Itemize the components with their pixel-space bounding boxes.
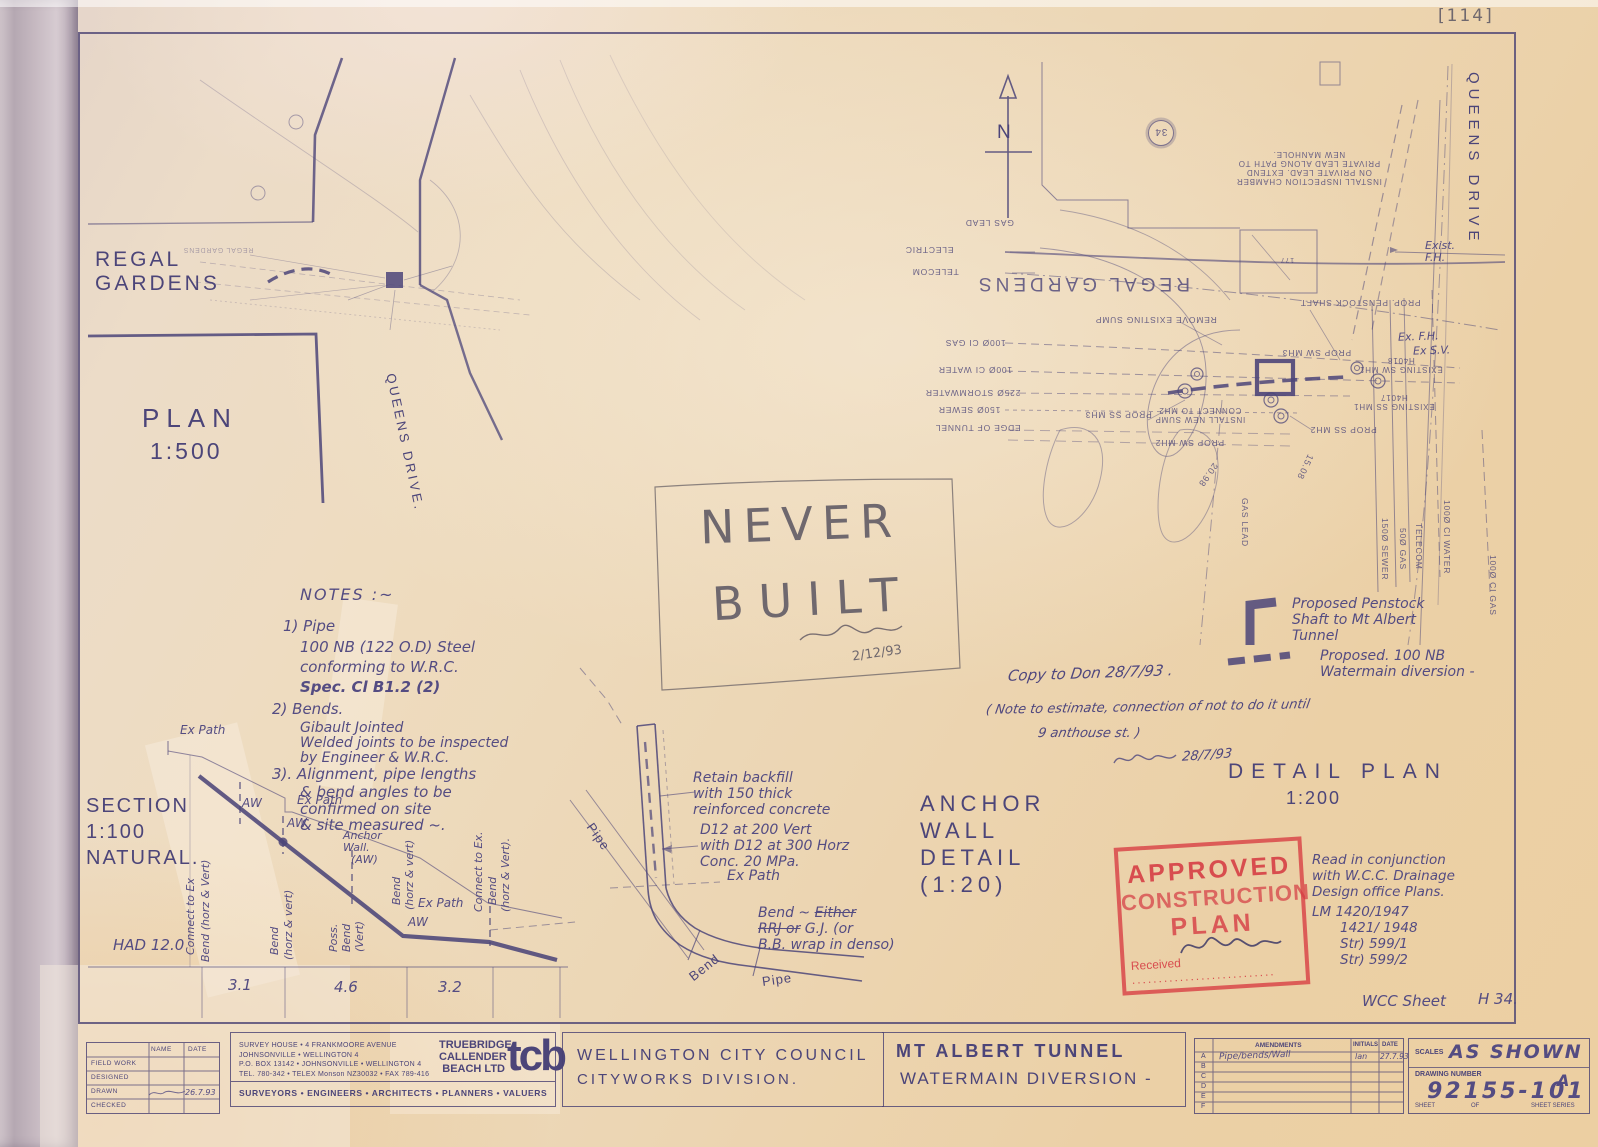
prop-sw-mh3-label: PROP SW MH3 — [1282, 348, 1351, 358]
plan500-scale: 1:500 — [150, 438, 223, 465]
v-water100-label: 100Ø CI WATER — [1442, 500, 1452, 574]
existing-ss-mh1-label: EXISTING SS MH1 H4017 — [1345, 393, 1443, 411]
sec-rot-connect5: Connect to Ex. — [472, 832, 485, 912]
client-line2: CITYWORKS DIVISION. — [577, 1071, 799, 1088]
legend-penstock-text: Proposed Penstock Shaft to Mt Albert Tun… — [1292, 596, 1425, 644]
drawn-name-signature — [147, 1087, 187, 1099]
drawing-number-label: DRAWING NUMBER — [1415, 1071, 1482, 1078]
row-designed: DESIGNED — [91, 1074, 129, 1081]
regal-gardens-label: REGAL GARDENS — [975, 272, 1190, 294]
note-line: 1) Pipe — [283, 617, 335, 635]
scan-top-edge — [0, 0, 1598, 7]
wcc-sheet-value: H 34. — [1478, 990, 1518, 1008]
sec-rot-bend2: Bend — [268, 927, 281, 955]
edge-tunnel-label: EDGE OF TUNNEL — [935, 423, 1021, 433]
amend-date-header: DATE — [1382, 1042, 1398, 1048]
amend-rowA-initials: lan — [1355, 1052, 1367, 1061]
amend-row-letter: C — [1201, 1073, 1206, 1080]
sec-rot-bend4: Bend — [390, 877, 403, 905]
legend-watermain-text: Proposed. 100 NB Watermain diversion - — [1320, 648, 1475, 680]
note-line: Spec. Cl B1.2 (2) — [300, 678, 440, 696]
sewer150-label: 150Ø SEWER — [938, 405, 1000, 415]
tcb-disciplines: SURVEYORS • ENGINEERS • ARCHITECTS • PLA… — [239, 1088, 547, 1098]
v-sewer150-label: 150Ø SEWER — [1380, 518, 1390, 580]
estimate-note-line2: 9 anthouse st. ) — [1037, 726, 1142, 741]
sec-rot-bend1: Bend (horz & Vert) — [199, 860, 212, 962]
received-signature — [1175, 925, 1285, 965]
amendments-table: AMENDMENTS INITIALS DATE A B C D E F Pip… — [1194, 1038, 1404, 1114]
detail-plan-title: DETAIL PLAN — [1228, 760, 1448, 784]
gas100-label: 100Ø CI GAS — [945, 338, 1006, 348]
telecom-label: TELECOM — [912, 267, 959, 277]
existing-sw-mh1-label: EXISTING SW MH1 H4018 — [1352, 356, 1450, 374]
ex-sv-note: Ex S.V. — [1413, 343, 1451, 357]
initials-header: INITIALS — [1353, 1042, 1378, 1048]
sec-rot-poss-bend: Bend — [340, 924, 353, 952]
scales-label: SCALES — [1415, 1049, 1443, 1056]
sec-ex-path-1: Ex Path — [180, 723, 225, 737]
plan500-regal-gardens-label: REGAL GARDENS — [95, 248, 220, 296]
fieldwork-table: NAME DATE FIELD WORK DESIGNED DRAWN CHEC… — [86, 1042, 220, 1114]
tcb-divider — [231, 1081, 555, 1082]
drawn-date: 26.7.93 — [185, 1088, 216, 1097]
row-drawn: DRAWN — [91, 1088, 118, 1095]
tcb-name: TRUEBRIDGE CALLENDER BEACH LTD — [439, 1039, 505, 1075]
notes-heading: NOTES :~ — [300, 585, 394, 604]
reinforcement-note: D12 at 200 Vert with D12 at 300 Horz Con… — [700, 822, 849, 870]
chainage-2: 4.6 — [334, 978, 358, 996]
water100-label: 100Ø CI WATER — [938, 365, 1012, 375]
note-line: 100 NB (122 O.D) Steel — [300, 638, 475, 656]
row-checked: CHECKED — [91, 1102, 126, 1109]
circled-ref-34: 34 — [1148, 120, 1174, 146]
scales-value: AS SHOWN — [1449, 1041, 1583, 1063]
pencil-reference-number: [114] — [1438, 6, 1494, 26]
col-date-header: DATE — [188, 1046, 207, 1053]
drawing-number-block: SCALES AS SHOWN DRAWING NUMBER 92155-101… — [1408, 1038, 1590, 1114]
client-line1: WELLINGTON CITY COUNCIL — [577, 1047, 869, 1065]
sheet-label: SHEET — [1415, 1103, 1435, 1109]
tcb-address: SURVEY HOUSE • 4 FRANKMOORE AVENUE JOHNS… — [239, 1041, 429, 1079]
project-block: MT ALBERT TUNNEL WATERMAIN DIVERSION - — [882, 1032, 1186, 1107]
never-built-word2: BUILT — [711, 567, 915, 631]
sec-ex-path-3: Ex Path — [418, 896, 463, 910]
sec-rot-poss-vert: (Vert) — [353, 921, 366, 952]
chainage-3: 3.2 — [438, 978, 462, 996]
detail-plan-scale: 1:200 — [1286, 788, 1341, 809]
remove-sump-label: REMOVE EXISTING SUMP — [1095, 315, 1217, 325]
sec-rot-connect5c: (horz & Vert). — [499, 838, 512, 912]
tcb-logo: tcb — [507, 1031, 564, 1081]
sec-anchor-wall-note: Anchor Wall. (AW) — [343, 830, 382, 866]
plan500-regal-mirror-label: REGAL GARDENS — [183, 246, 253, 253]
note-signature — [1110, 745, 1180, 771]
revision-letter: A — [1557, 1071, 1569, 1090]
amend-row-letter: A — [1201, 1053, 1206, 1060]
sec-rot-connect1: Connect to Ex — [184, 878, 197, 955]
sec-rot-bend4b: (horz & vert) — [403, 840, 416, 910]
conjunction-note: Read in conjunction with W.C.C. Drainage… — [1312, 852, 1455, 968]
prop-penstock-label: PROP. PENSTOCK SHAFT — [1300, 298, 1421, 308]
building-number: 177 — [1280, 256, 1294, 263]
sec-aw-2: AW — [287, 816, 307, 830]
sheet-series-label: SHEET SERIES — [1531, 1103, 1575, 1109]
of-label: OF — [1471, 1103, 1479, 1109]
amend-row-letter: E — [1201, 1093, 1206, 1100]
sec-ex-path-2: Ex Path — [297, 793, 342, 807]
v-gas-lead-label: GAS LEAD — [1240, 498, 1250, 547]
scanned-drawing-sheet: [114] REGAL GARDENS REGA — [0, 0, 1598, 1147]
never-built-word1: NEVER — [699, 494, 902, 555]
install-sump-note: INSTALL NEW SUMP CONNECT TO MH2 — [1150, 406, 1250, 424]
sec-aw-1: AW — [242, 796, 262, 810]
v-gas50-label: 50Ø GAS — [1398, 528, 1408, 570]
gas-lead-label: GAS LEAD — [965, 218, 1014, 228]
anchor-wall-title: ANCHOR WALL DETAIL (1:20) — [920, 790, 1045, 898]
backfill-note: Retain backfill with 150 thick reinforce… — [693, 770, 830, 818]
ex-fh-note: Ex. F.H. — [1398, 329, 1439, 343]
amend-row-letter: B — [1201, 1063, 1206, 1070]
prop-ss-mh2-label: PROP SS MH2 — [1310, 425, 1377, 435]
sec-rot-bend2b: (horz & vert) — [282, 890, 295, 960]
bend-joint-note: Bend ~ Either RRJ or G.J. (or B.B. wrap … — [758, 905, 895, 953]
client-block: WELLINGTON CITY COUNCIL CITYWORKS DIVISI… — [562, 1032, 884, 1107]
prop-ss-mh3-label: PROP SS MH3 — [1085, 410, 1152, 420]
project-line1: MT ALBERT TUNNEL — [896, 1041, 1125, 1062]
v-gas100-label: 100Ø CI GAS — [1488, 555, 1498, 616]
storm225-label: 225Ø STORMWATER — [925, 388, 1020, 398]
queens-drive-right-label: QUEENS DRIVE — [1465, 72, 1482, 245]
section-datum: HAD 12.0 — [113, 936, 184, 954]
tcb-block: SURVEY HOUSE • 4 FRANKMOORE AVENUE JOHNS… — [230, 1032, 556, 1107]
amendments-header: AMENDMENTS — [1255, 1042, 1302, 1049]
col-name-header: NAME — [151, 1046, 172, 1053]
amend-row-letter: F — [1201, 1103, 1205, 1110]
plan500-title: PLAN — [142, 403, 238, 434]
amend-rowA-date: 27.7.93 — [1380, 1052, 1409, 1061]
install-chamber-note: INSTALL INSPECTION CHAMBER ON PRIVATE LE… — [1230, 150, 1388, 186]
electric-label: ELECTRIC — [905, 245, 953, 255]
sec-rot-poss: Poss. — [327, 924, 340, 952]
row-field-work: FIELD WORK — [91, 1060, 136, 1067]
scales-divider — [1409, 1067, 1589, 1068]
section-title: SECTION 1:100 NATURAL. — [86, 793, 199, 871]
approved-stamp: APPROVED CONSTRUCTION PLAN Received ....… — [1114, 836, 1311, 995]
prop-sw-mh2-label: PROP SW MH2 — [1155, 438, 1224, 448]
chainage-1: 3.1 — [228, 976, 252, 994]
amend-row-letter: D — [1201, 1083, 1206, 1090]
wcc-sheet-label: WCC Sheet — [1362, 992, 1446, 1010]
sec-rot-connect5b: Bend — [486, 877, 499, 905]
sec-aw-3: AW — [408, 915, 428, 929]
exist-fh-note: Exist. F.H. — [1425, 240, 1455, 264]
project-line2: WATERMAIN DIVERSION - — [900, 1069, 1153, 1089]
note-line: conforming to W.R.C. — [300, 658, 459, 676]
v-telecom-label: TELECOM — [1414, 523, 1424, 570]
anchor-ex-path: Ex Path — [727, 868, 780, 884]
